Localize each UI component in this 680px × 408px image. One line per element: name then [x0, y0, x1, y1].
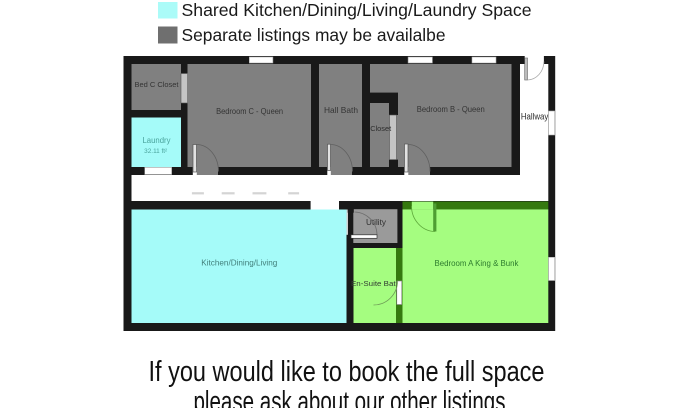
- svg-text:If you would like to book the: If you would like to book the full space: [149, 356, 545, 388]
- svg-text:32.11 ft²: 32.11 ft²: [144, 148, 167, 155]
- svg-text:Kitchen/Dining/Living: Kitchen/Dining/Living: [201, 259, 277, 268]
- svg-text:Bedroom B - Queen: Bedroom B - Queen: [417, 104, 485, 114]
- svg-text:Shared Kitchen/Dining/Living/L: Shared Kitchen/Dining/Living/Laundry Spa…: [182, 0, 532, 20]
- svg-text:Closet: Closet: [370, 124, 392, 133]
- svg-text:please ask about our other lis: please ask about our other listings: [194, 386, 506, 408]
- svg-text:Bed C Closet: Bed C Closet: [135, 80, 180, 89]
- svg-text:Hallway: Hallway: [521, 112, 549, 122]
- svg-text:Bedroom A King & Bunk: Bedroom A King & Bunk: [435, 259, 520, 268]
- svg-text:En-Suite Bath: En-Suite Bath: [351, 279, 400, 288]
- svg-text:Utility: Utility: [366, 217, 387, 227]
- svg-text:Separate listings may be avail: Separate listings may be availalbe: [182, 25, 446, 45]
- svg-text:Laundry: Laundry: [143, 136, 171, 145]
- svg-text:Hall Bath: Hall Bath: [324, 105, 358, 115]
- svg-text:Bedroom C - Queen: Bedroom C - Queen: [216, 106, 283, 116]
